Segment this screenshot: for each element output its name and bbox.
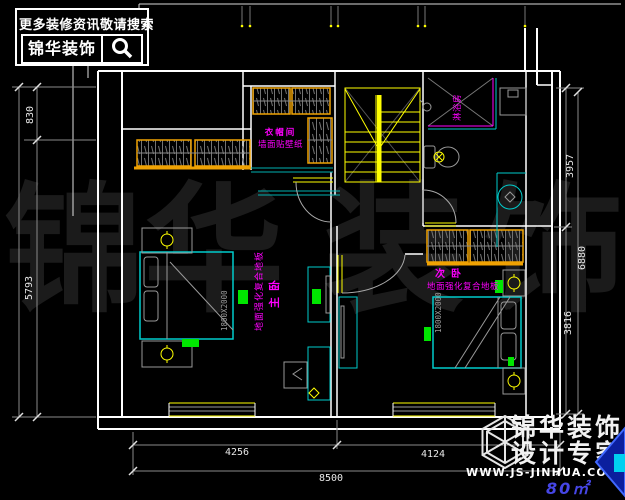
room-name-label: 主卧 [266, 251, 282, 331]
second-bed [433, 297, 521, 368]
search-icon[interactable] [103, 36, 141, 62]
header-logo: 更多装修资讯敬请搜索 锦华装饰 [15, 8, 149, 66]
room-label-master: 地面强化复合地板 主卧 [252, 251, 282, 331]
tv-cabinets [308, 267, 357, 368]
room-finish-label: 墙面贴壁纸 [258, 138, 303, 150]
dim-left-main: 5793 [24, 276, 35, 300]
dim-right-top: 3957 [565, 154, 576, 178]
search-box[interactable]: 锦华装饰 [21, 34, 143, 64]
desk-and-chair [284, 347, 330, 400]
projection-dots [241, 25, 527, 28]
washing-machine [500, 88, 526, 115]
dim-right-total: 6880 [577, 246, 588, 270]
dim-bottom-left: 4256 [215, 447, 259, 458]
dim-left-top: 830 [25, 106, 36, 124]
projection-lines [242, 6, 525, 26]
play-arrow-icon [594, 420, 625, 500]
room-label-cloak: 衣帽间 墙面贴壁纸 [258, 126, 303, 150]
room-label-shower: 淋浴房 [451, 94, 463, 121]
bed-size-label: 1800X2000 [220, 290, 229, 331]
wardrobes [137, 88, 523, 262]
room-label-second: 次卧 地面强化复合地板 [427, 265, 499, 292]
dim-bottom-total: 8500 [309, 473, 353, 484]
room-name-label: 次卧 [427, 265, 499, 280]
search-brand-label: 锦华装饰 [23, 36, 103, 62]
dim-bottom-right: 4124 [411, 449, 455, 460]
area-badge: 80㎡ [546, 475, 590, 499]
bed-size-label: 1800X2000 [434, 292, 443, 333]
windows [169, 403, 495, 416]
toilet [424, 146, 459, 168]
floorplan-canvas: 锦 华 装 饰 [0, 0, 625, 500]
room-finish-label: 地面强化复合地板 [427, 280, 499, 292]
dim-right-bottom: 3816 [563, 311, 574, 335]
sheet-frame [139, 4, 621, 12]
room-name-label: 衣帽间 [258, 126, 303, 138]
header-tagline: 更多装修资讯敬请搜索 [19, 14, 145, 33]
staircase-cross-brace [345, 88, 420, 182]
room-name-label: 淋浴房 [451, 94, 463, 121]
room-finish-label: 地面强化复合地板 [252, 251, 265, 331]
